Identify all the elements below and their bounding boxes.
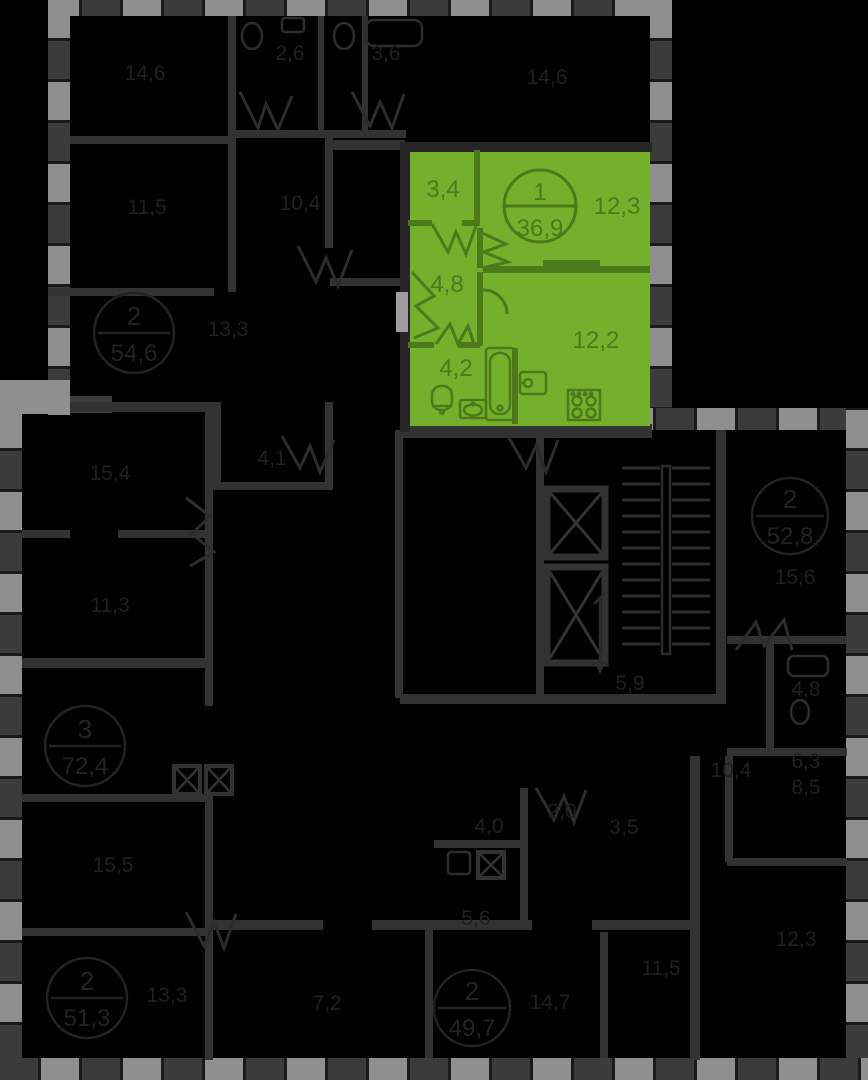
background-room-label: 13,3 xyxy=(208,318,249,341)
background-room-label: 14,7 xyxy=(530,991,571,1014)
entry-door-leaf xyxy=(396,292,408,332)
background-unit-badge[interactable]: 249,7 xyxy=(434,970,510,1046)
background-room-label: 5,6 xyxy=(461,907,490,930)
room-label-bathroom: 4,2 xyxy=(439,355,472,382)
background-room-label: 12,3 xyxy=(776,928,817,951)
background-room-label: 10,4 xyxy=(711,759,752,782)
unit-badge[interactable]: 1 36,9 xyxy=(504,170,576,242)
room-label-wardrobe: 3,4 xyxy=(426,176,459,203)
svg-text:49,7: 49,7 xyxy=(449,1015,496,1042)
background-room-label: 11,5 xyxy=(127,196,166,219)
svg-text:2: 2 xyxy=(465,976,479,1006)
background-room-label: 15,5 xyxy=(93,854,134,877)
svg-text:52,8: 52,8 xyxy=(767,523,814,550)
unit-total-area: 36,9 xyxy=(517,215,564,242)
background-room-label: 14,6 xyxy=(527,66,568,89)
room-label-kitchen: 12,2 xyxy=(573,327,620,354)
background-room-label: 15,6 xyxy=(775,566,816,589)
room-label-hallway: 4,8 xyxy=(430,271,463,298)
background-room-label: 14,6 xyxy=(125,62,166,85)
background-room-label: 2,6 xyxy=(275,42,304,65)
background-unit-badge[interactable]: 254,6 xyxy=(94,293,174,373)
floor-plan: 254,6252,8372,4251,3249,7 14,62,63,614,6… xyxy=(0,0,868,1080)
background-unit-badge[interactable]: 252,8 xyxy=(752,478,828,554)
background-room-label: 11,3 xyxy=(90,594,129,617)
svg-text:54,6: 54,6 xyxy=(111,340,158,367)
background-room-label: 4,1 xyxy=(257,447,286,470)
floor-plan-canvas: 254,6252,8372,4251,3249,7 14,62,63,614,6… xyxy=(0,0,868,1080)
background-room-label: 7,2 xyxy=(312,992,341,1015)
background-room-label: 8,5 xyxy=(791,776,820,799)
background-room-label: 3,6 xyxy=(371,42,400,65)
svg-text:51,3: 51,3 xyxy=(64,1005,111,1032)
background-room-label: 5,9 xyxy=(615,672,644,695)
background-unit-badge[interactable]: 372,4 xyxy=(45,706,125,786)
background-room-label: 4,8 xyxy=(791,678,820,701)
room-label-living: 12,3 xyxy=(594,193,641,220)
staircase xyxy=(594,464,710,674)
background-room-label: 11,5 xyxy=(641,957,680,980)
svg-text:72,4: 72,4 xyxy=(62,753,109,780)
background-room-label: 6,3 xyxy=(791,750,820,773)
background-room-label: 2,0 xyxy=(547,800,576,823)
unit-rooms-count: 1 xyxy=(533,179,546,206)
svg-text:2: 2 xyxy=(80,966,94,996)
background-room-label: 3,5 xyxy=(609,816,638,839)
svg-text:2: 2 xyxy=(127,301,141,331)
svg-text:3: 3 xyxy=(78,714,92,744)
background-room-label: 4,0 xyxy=(474,815,503,838)
svg-text:2: 2 xyxy=(783,484,797,514)
background-room-label: 13,3 xyxy=(147,984,188,1007)
selected-unit[interactable]: 1 36,9 3,4 12,3 4,8 4,2 12,2 xyxy=(396,142,652,432)
background-room-label: 15,4 xyxy=(90,462,131,485)
background-room-label: 10,4 xyxy=(280,192,321,215)
background-unit-badge[interactable]: 251,3 xyxy=(47,958,127,1038)
